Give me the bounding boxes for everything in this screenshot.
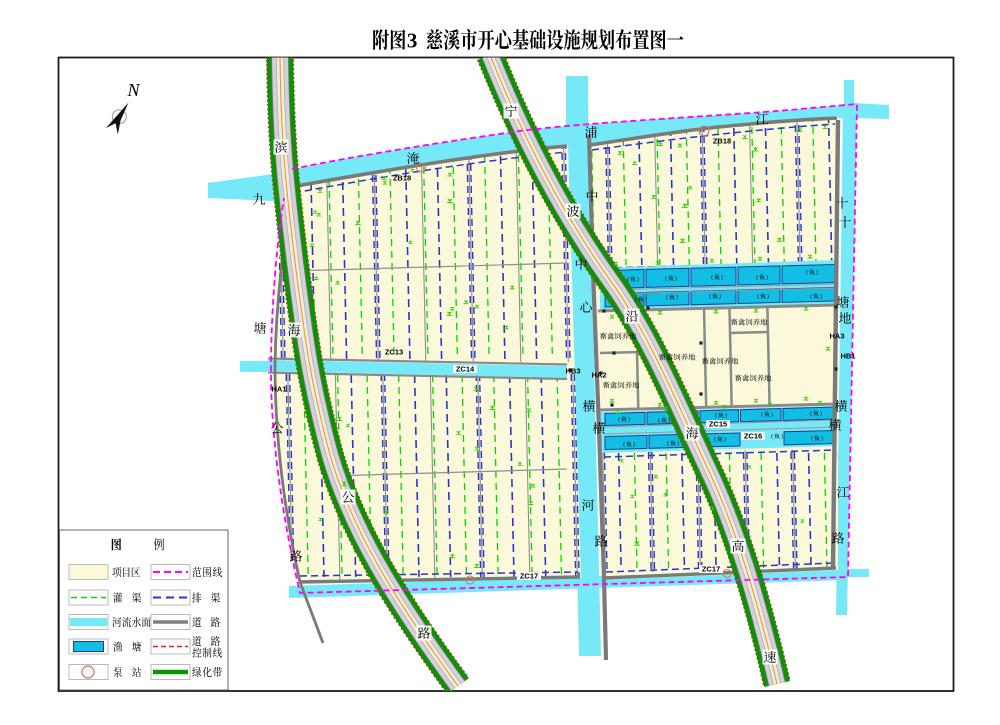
svg-text:ZC15: ZC15 — [709, 420, 727, 429]
svg-text:3: 3 — [407, 29, 418, 53]
svg-text:): ) — [719, 294, 721, 300]
svg-text:ZC17: ZC17 — [702, 565, 720, 574]
svg-text:(: ( — [618, 417, 620, 423]
svg-text:ZB18: ZB18 — [713, 137, 731, 146]
svg-text:ZC16: ZC16 — [744, 432, 762, 441]
svg-text:(: ( — [627, 277, 629, 283]
svg-text:(: ( — [715, 413, 717, 419]
svg-text:(: ( — [667, 441, 669, 447]
svg-text:ZC13: ZC13 — [385, 348, 403, 357]
svg-text:(: ( — [665, 276, 667, 282]
svg-text:): ) — [820, 294, 822, 300]
svg-text:): ) — [725, 413, 727, 419]
svg-text:): ) — [676, 295, 678, 301]
svg-text:HA3: HA3 — [829, 332, 844, 341]
svg-text:(: ( — [757, 294, 759, 300]
svg-text:): ) — [781, 434, 783, 440]
svg-text:ZB18: ZB18 — [393, 174, 411, 183]
svg-text:): ) — [766, 275, 768, 281]
svg-text:): ) — [821, 436, 823, 442]
svg-text:ZC17: ZC17 — [520, 572, 538, 581]
svg-text:): ) — [633, 442, 635, 448]
svg-text:): ) — [820, 411, 822, 417]
svg-text:): ) — [767, 294, 769, 300]
svg-text:(: ( — [810, 411, 812, 417]
svg-text:HA1: HA1 — [271, 385, 286, 394]
svg-text:HB1: HB1 — [840, 352, 855, 361]
svg-text:(: ( — [658, 418, 660, 424]
svg-text:(: ( — [709, 294, 711, 300]
svg-text:): ) — [645, 297, 647, 303]
svg-text:HA2: HA2 — [591, 371, 606, 380]
svg-text:(: ( — [714, 437, 716, 443]
svg-text:): ) — [721, 275, 723, 281]
svg-text:(: ( — [761, 412, 763, 418]
svg-text:): ) — [637, 277, 639, 283]
svg-text:ZC14: ZC14 — [456, 365, 475, 374]
svg-text:): ) — [628, 417, 630, 423]
svg-text:): ) — [677, 441, 679, 447]
svg-text:): ) — [816, 270, 818, 276]
svg-text:(: ( — [666, 295, 668, 301]
svg-text:N: N — [126, 80, 140, 100]
svg-text:(: ( — [806, 270, 808, 276]
svg-text:): ) — [668, 418, 670, 424]
svg-text:(: ( — [810, 294, 812, 300]
svg-text:(: ( — [635, 297, 637, 303]
svg-text:(: ( — [623, 442, 625, 448]
svg-text:(: ( — [756, 275, 758, 281]
svg-text:(: ( — [771, 434, 773, 440]
svg-text:): ) — [724, 437, 726, 443]
svg-text:): ) — [771, 412, 773, 418]
svg-text:): ) — [675, 276, 677, 282]
svg-text:HB3: HB3 — [565, 367, 580, 376]
svg-text:(: ( — [811, 436, 813, 442]
svg-text:(: ( — [711, 275, 713, 281]
